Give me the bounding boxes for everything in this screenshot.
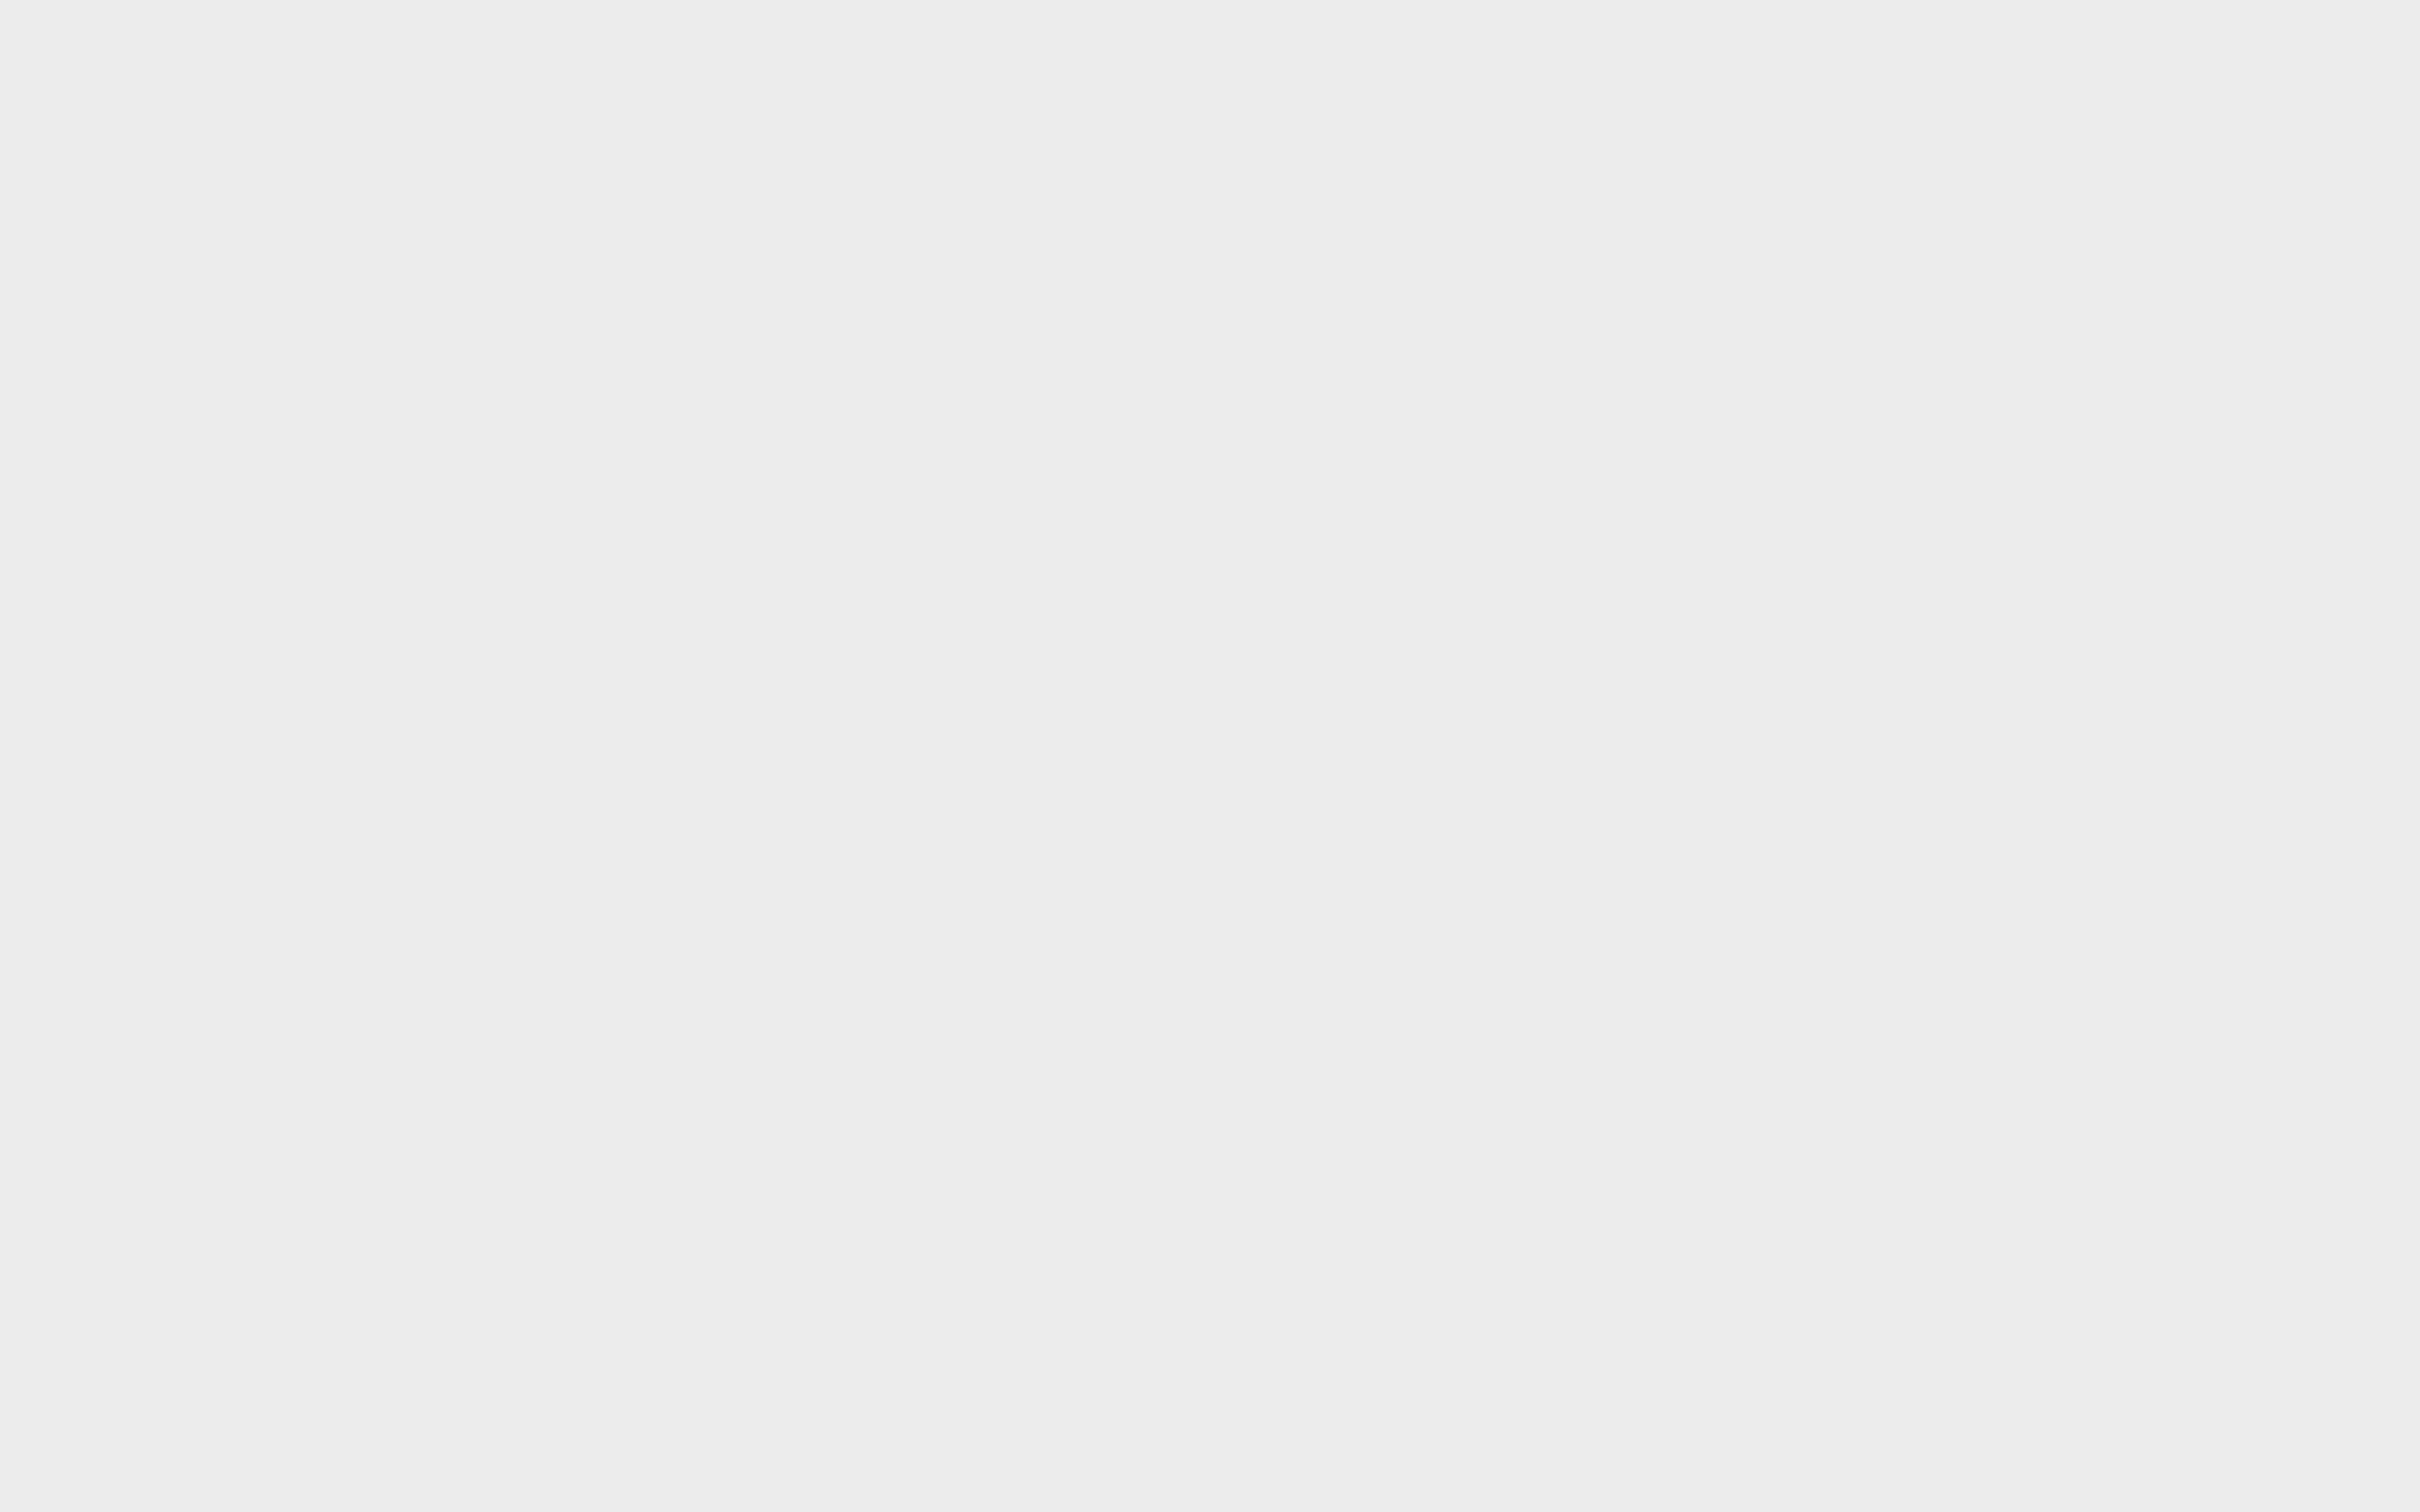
blender-window [1210,756,2420,1512]
quadrant-bottom-left-flipped [0,756,1210,1512]
quadrant-top-left-flipped [0,0,1210,756]
kaleidoscope-desktop [0,0,2420,1512]
quadrant-top-right-flipped [1210,0,2420,756]
quadrant-bottom-right [1210,756,2420,1512]
